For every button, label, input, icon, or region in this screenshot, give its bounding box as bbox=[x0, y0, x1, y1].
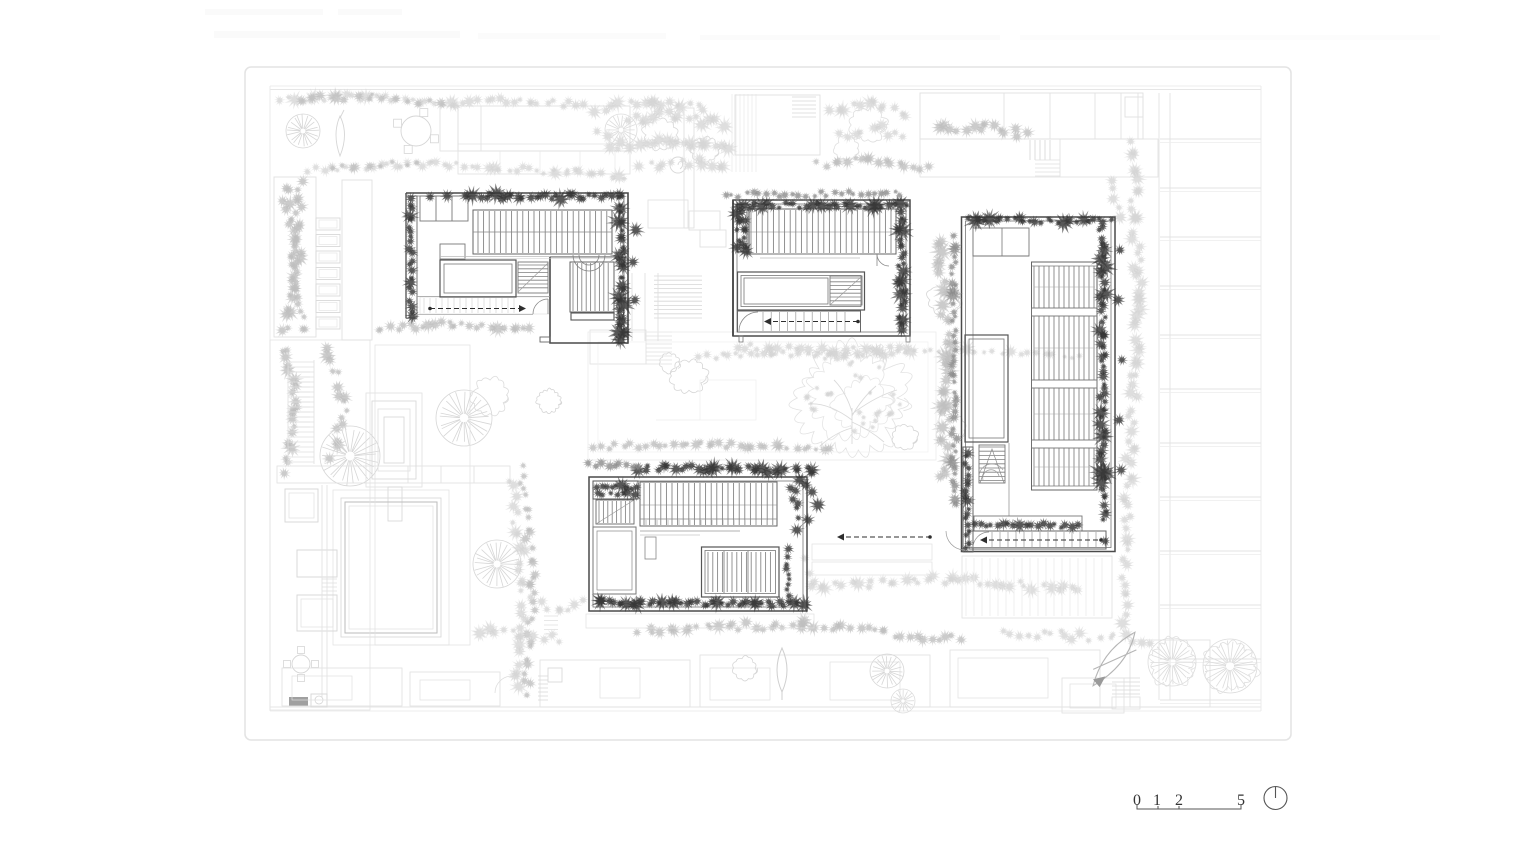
svg-text:1: 1 bbox=[1153, 792, 1161, 809]
